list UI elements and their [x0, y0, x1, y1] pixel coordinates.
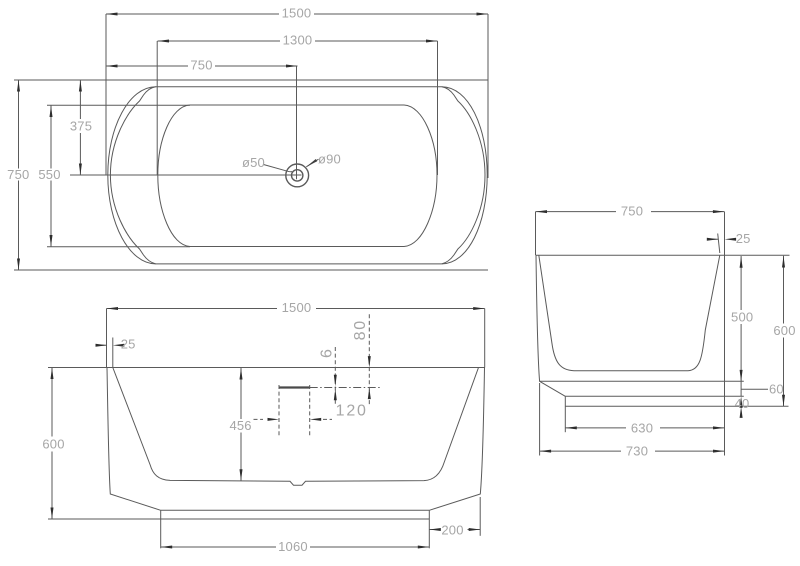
svg-text:1500: 1500	[282, 300, 312, 315]
svg-text:200: 200	[441, 523, 463, 538]
svg-text:25: 25	[736, 231, 751, 246]
svg-text:80: 80	[352, 319, 369, 340]
svg-text:1060: 1060	[278, 539, 308, 554]
svg-text:375: 375	[70, 119, 92, 134]
svg-text:630: 630	[631, 421, 653, 436]
svg-text:60: 60	[769, 382, 784, 397]
svg-text:750: 750	[190, 58, 212, 73]
svg-text:120: 120	[336, 403, 368, 420]
svg-text:500: 500	[731, 310, 753, 325]
svg-text:40: 40	[735, 396, 750, 411]
svg-text:750: 750	[621, 203, 643, 218]
svg-text:6: 6	[319, 347, 336, 358]
svg-text:600: 600	[42, 437, 64, 452]
svg-text:730: 730	[626, 444, 648, 459]
svg-text:1500: 1500	[282, 6, 312, 21]
svg-text:1300: 1300	[283, 33, 313, 48]
svg-text:750: 750	[7, 167, 29, 182]
svg-text:600: 600	[773, 323, 795, 338]
svg-text:550: 550	[38, 167, 60, 182]
svg-text:ø90: ø90	[318, 152, 341, 167]
svg-text:ø50: ø50	[242, 155, 265, 170]
svg-text:456: 456	[229, 418, 251, 433]
svg-text:25: 25	[121, 336, 136, 351]
